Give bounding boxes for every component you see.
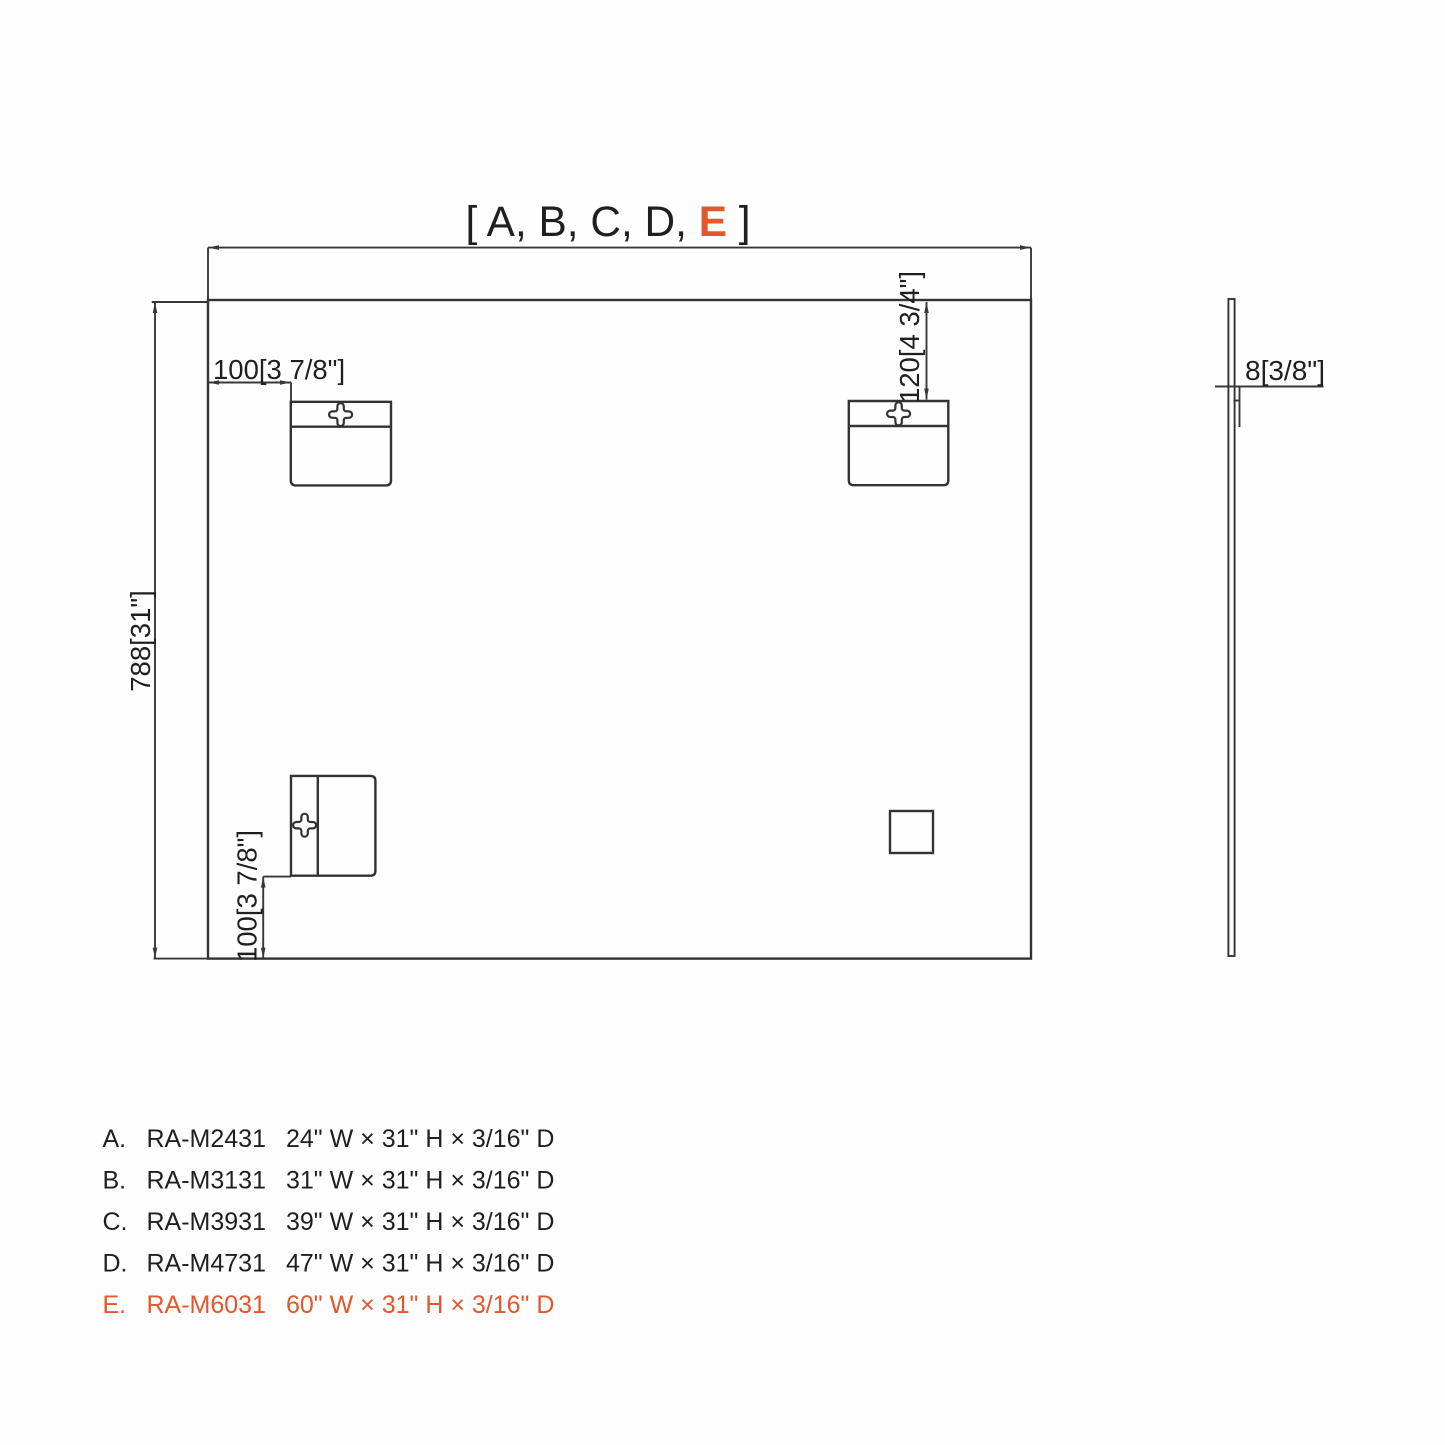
svg-text:A.: A. bbox=[103, 1125, 127, 1153]
svg-text:RA-M3131: RA-M3131 bbox=[147, 1167, 267, 1195]
svg-text:RA-M2431: RA-M2431 bbox=[147, 1125, 267, 1153]
svg-text:RA-M3931: RA-M3931 bbox=[147, 1208, 267, 1236]
svg-text:39" W × 31" H × 3/16" D: 39" W × 31" H × 3/16" D bbox=[286, 1208, 554, 1236]
svg-text:47" W × 31" H × 3/16" D: 47" W × 31" H × 3/16" D bbox=[286, 1250, 554, 1278]
svg-text:E.: E. bbox=[103, 1291, 127, 1319]
svg-text:C.: C. bbox=[103, 1208, 128, 1236]
svg-text:60" W × 31" H × 3/16" D: 60" W × 31" H × 3/16" D bbox=[286, 1291, 554, 1319]
svg-text:B.: B. bbox=[103, 1167, 127, 1195]
svg-text:100[3 7/8"]: 100[3 7/8"] bbox=[232, 830, 263, 962]
svg-text:RA-M6031: RA-M6031 bbox=[147, 1291, 267, 1319]
svg-text:31" W × 31" H × 3/16" D: 31" W × 31" H × 3/16" D bbox=[286, 1167, 554, 1195]
svg-text:RA-M4731: RA-M4731 bbox=[147, 1250, 267, 1278]
svg-text:D.: D. bbox=[103, 1250, 128, 1278]
svg-text:[ A, B, C, D, E ]: [ A, B, C, D, E ] bbox=[465, 198, 750, 245]
svg-text:24" W × 31" H × 3/16" D: 24" W × 31" H × 3/16" D bbox=[286, 1125, 554, 1153]
svg-text:120[4 3/4"]: 120[4 3/4"] bbox=[894, 271, 925, 403]
svg-text:100[3 7/8"]: 100[3 7/8"] bbox=[213, 354, 345, 385]
svg-text:8[3/8"]: 8[3/8"] bbox=[1245, 355, 1325, 386]
svg-text:788[31"]: 788[31"] bbox=[125, 590, 156, 692]
